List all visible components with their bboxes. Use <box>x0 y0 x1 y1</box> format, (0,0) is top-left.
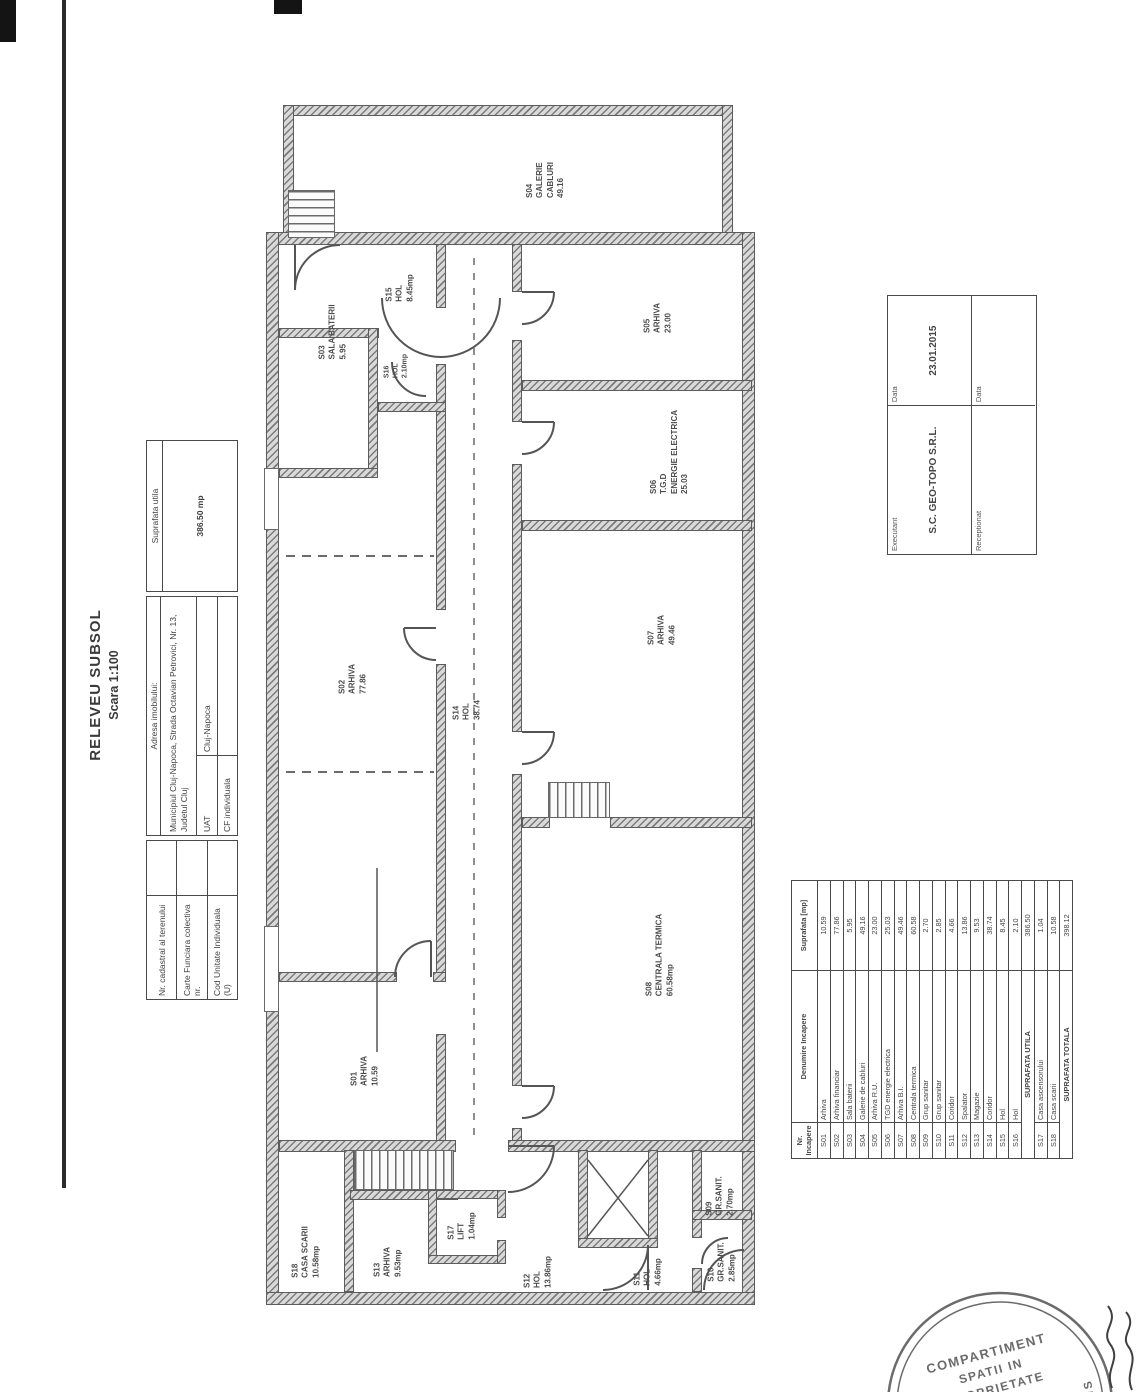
staircase <box>548 782 610 818</box>
room-label-S07: S07 ARHIVA 49.46 <box>646 615 677 645</box>
wall-segment <box>279 468 378 478</box>
window-opening <box>264 926 279 1012</box>
wall-segment <box>512 464 522 732</box>
data-value: 23.01.2015 <box>888 296 971 405</box>
carte-funciara-value <box>177 841 206 895</box>
room-label-S08: S08 CENTRALA TERMICA 60.58mp <box>644 914 675 996</box>
shaft-x-mark <box>588 1160 648 1236</box>
executant-title-block: Executant S.C. GEO-TOPO S.R.L. Data 23.0… <box>887 295 1037 555</box>
surface-block: Suprafata utila 386.50 mp <box>146 440 238 592</box>
room-table-row: S13Magazie9.53 <box>971 881 984 1159</box>
door-arc <box>522 732 554 764</box>
wall-segment <box>378 402 446 412</box>
wall-segment <box>436 1034 446 1150</box>
plan-title: RELEVEU SUBSOL <box>87 595 104 775</box>
stamp-ring-text: TELEKOM ROMANIA COMMUNICATIONS <box>906 1377 1119 1392</box>
window-opening <box>264 468 279 530</box>
room-label-S10: S10 GR.SANIT. 2.85mp <box>706 1242 737 1282</box>
cod-unitate-value <box>208 841 237 895</box>
wall-segment <box>368 328 378 478</box>
room-table-row: S11Coridor4.66 <box>945 881 958 1159</box>
room-table-row: S02Arhiva financiar77.86 <box>830 881 843 1159</box>
handwritten-signature <box>1107 1306 1133 1390</box>
wall-segment <box>266 232 279 1305</box>
cod-unitate-label: Cod Unitate Individuala (U) <box>208 895 237 999</box>
data2-label: Data <box>974 386 983 402</box>
executant-label: Executant <box>890 518 899 551</box>
wall-segment <box>512 244 522 292</box>
wall-segment <box>266 1292 755 1305</box>
plan-scale: Scara 1:100 <box>107 595 121 775</box>
wall-segment <box>436 244 446 308</box>
staircase <box>354 1150 454 1190</box>
room-label-S05: S05 ARHIVA 23.00 <box>642 303 673 333</box>
nr-cadastral-value <box>147 841 176 895</box>
room-label-S12: S12 HOL 13.86mp <box>522 1256 553 1288</box>
wall-segment <box>436 364 446 610</box>
cf-value <box>218 597 238 755</box>
address-header: Adresa imobilului: <box>147 597 160 835</box>
room-table-row: S10Grup sanitar2.85 <box>932 881 945 1159</box>
scanned-document-page: RELEVEU SUBSOL Scara 1:100 Nr. cadastral… <box>0 0 1144 1392</box>
wall-segment <box>648 1150 658 1248</box>
col-header-suprafata: Suprafata [mp] <box>792 881 818 971</box>
wall-segment <box>433 972 446 982</box>
room-table-total-row: SUPRAFATA UTILA386.50 <box>1022 881 1035 1159</box>
wall-segment <box>578 1238 658 1248</box>
wall-segment <box>279 972 397 982</box>
room-label-S03: S03 SALA BATERII 5.95 <box>317 304 348 359</box>
document-title: RELEVEU SUBSOL Scara 1:100 <box>87 595 133 775</box>
suprafata-label: Suprafata utila <box>147 441 162 591</box>
scan-edge-line <box>62 0 66 1188</box>
room-table-header-row: Nr. Incapere Denumire Incapere Suprafata… <box>792 881 818 1159</box>
door-arc <box>522 1086 554 1118</box>
wall-segment <box>436 664 446 980</box>
wall-segment <box>522 380 752 391</box>
room-table-row: S07Arhiva B.I.49.46 <box>894 881 907 1159</box>
wall-segment <box>512 774 522 1086</box>
address-block: Adresa imobilului: Municipiul Cluj-Napoc… <box>146 596 238 836</box>
address-value: Municipiul Cluj-Napoca, Strada Octavian … <box>161 597 196 835</box>
receptionat-label: Receptionat <box>974 511 983 551</box>
stamp-line1: COMPARTIMENT <box>925 1330 1048 1376</box>
room-table-row: S01Arhiva10.59 <box>818 881 831 1159</box>
staircase <box>288 190 335 238</box>
carte-funciara-label: Carte Funciara colectiva nr. <box>177 895 206 999</box>
cf-label: CF individuala <box>218 755 238 835</box>
room-table-body: S01Arhiva10.59S02Arhiva financiar77.86S0… <box>818 881 1073 1159</box>
door-arc <box>522 422 554 454</box>
room-label-S01: S01 ARHIVA 10.59 <box>349 1056 380 1086</box>
uat-label: UAT <box>197 755 217 835</box>
room-table-row: S03Sala baterii5.95 <box>843 881 856 1159</box>
room-table-row: S15Hol8.45 <box>996 881 1009 1159</box>
room-label-S16: S16 HOL 2.10mp <box>382 354 409 378</box>
wall-segment <box>266 232 755 245</box>
room-label-S06: S06 T.G.D ENERGIE ELECTRICA 25.03 <box>649 410 691 494</box>
suprafata-value: 386.50 mp <box>163 441 237 591</box>
wall-segment <box>497 1190 506 1218</box>
wall-segment <box>428 1190 437 1264</box>
room-table-row: S16Hol2.10 <box>1009 881 1022 1159</box>
door-arc <box>522 292 554 324</box>
wall-segment <box>428 1255 506 1264</box>
room-table-total-row: SUPRAFATA TOTALA398.12 <box>1060 881 1073 1159</box>
wall-segment <box>692 1150 702 1238</box>
nr-cadastral-label: Nr. cadastral al terenului <box>147 895 176 999</box>
wall-segment <box>283 105 733 116</box>
door-arc <box>395 941 431 977</box>
wall-segment <box>578 1150 588 1248</box>
room-table-row: S18Casa scarii10.58 <box>1047 881 1060 1159</box>
room-table-row: S04Galerie de cabluri49.16 <box>856 881 869 1159</box>
door-arc <box>508 1146 554 1192</box>
cadastral-info-table: Nr. cadastral al terenului Carte Funciar… <box>146 440 238 1000</box>
room-label-S09: S09 GR.SANIT. 2.70mp <box>704 1176 735 1216</box>
room-label-S14: S14 HOL 38.74 <box>451 700 482 720</box>
wall-segment <box>344 1150 354 1292</box>
room-label-S02: S02 ARHIVA 77.86 <box>337 664 368 694</box>
wall-segment <box>722 105 733 242</box>
room-table-row: S08Centrala termica60.58 <box>907 881 920 1159</box>
scan-blob <box>274 0 302 14</box>
uat-value: Cluj-Napoca <box>197 597 217 755</box>
room-label-S15: S15 HOL 8.45mp <box>384 274 415 302</box>
room-table-row: S12Spalator13.86 <box>958 881 971 1159</box>
col-header-denumire: Denumire Incapere <box>792 971 818 1123</box>
scan-blob <box>0 0 16 42</box>
wall-segment <box>610 817 752 828</box>
wall-segment <box>522 520 752 531</box>
telekom-stamp: TELEKOM ROMANIA COMMUNICATIONS COMPARTIM… <box>863 1268 1137 1392</box>
door-arc <box>295 245 340 290</box>
room-label-S13: S13 ARHIVA 9.53mp <box>372 1247 403 1277</box>
room-table-row: S09Grup sanitar2.70 <box>920 881 933 1159</box>
wall-segment <box>512 340 522 422</box>
wall-segment <box>508 1140 755 1152</box>
door-arc <box>404 628 436 660</box>
data-label: Data <box>890 386 899 402</box>
wall-segment <box>428 1190 506 1199</box>
col-header-nr: Nr. Incapere <box>792 1123 818 1159</box>
room-table-row: S05Arhiva R.U.23.00 <box>869 881 882 1159</box>
svg-text:TELEKOM ROMANIA COMMUNICATIONS: TELEKOM ROMANIA COMMUNICATIONS <box>906 1377 1119 1392</box>
room-label-S04: S04 GALERIE CABLURI 49.16 <box>525 162 567 198</box>
executant-value: S.C. GEO-TOPO S.R.L. <box>888 406 971 554</box>
room-table-row: S17Casa ascensorului1.04 <box>1034 881 1047 1159</box>
room-label-S11: S11 HOL 4.66mp <box>632 1258 663 1286</box>
stamp-line3: PROPRIETATE <box>945 1369 1045 1392</box>
wall-segment <box>497 1240 506 1264</box>
room-list-table: Nr. Incapere Denumire Incapere Suprafata… <box>791 881 1073 1159</box>
stamp-line2: SPATII IN <box>957 1356 1024 1387</box>
room-label-S17: S17 LIFT 1.04mp <box>446 1212 477 1240</box>
wall-segment <box>692 1268 702 1292</box>
cadastral-block: Nr. cadastral al terenului Carte Funciar… <box>146 840 238 1000</box>
room-label-S18: S18 CASA SCARII 10.58mp <box>290 1226 321 1278</box>
shaft-x-mark <box>588 1160 648 1236</box>
wall-segment <box>522 817 550 828</box>
room-table-row: S06TGD energie electrica25.03 <box>881 881 894 1159</box>
room-table-row: S14Coridor38.74 <box>983 881 996 1159</box>
